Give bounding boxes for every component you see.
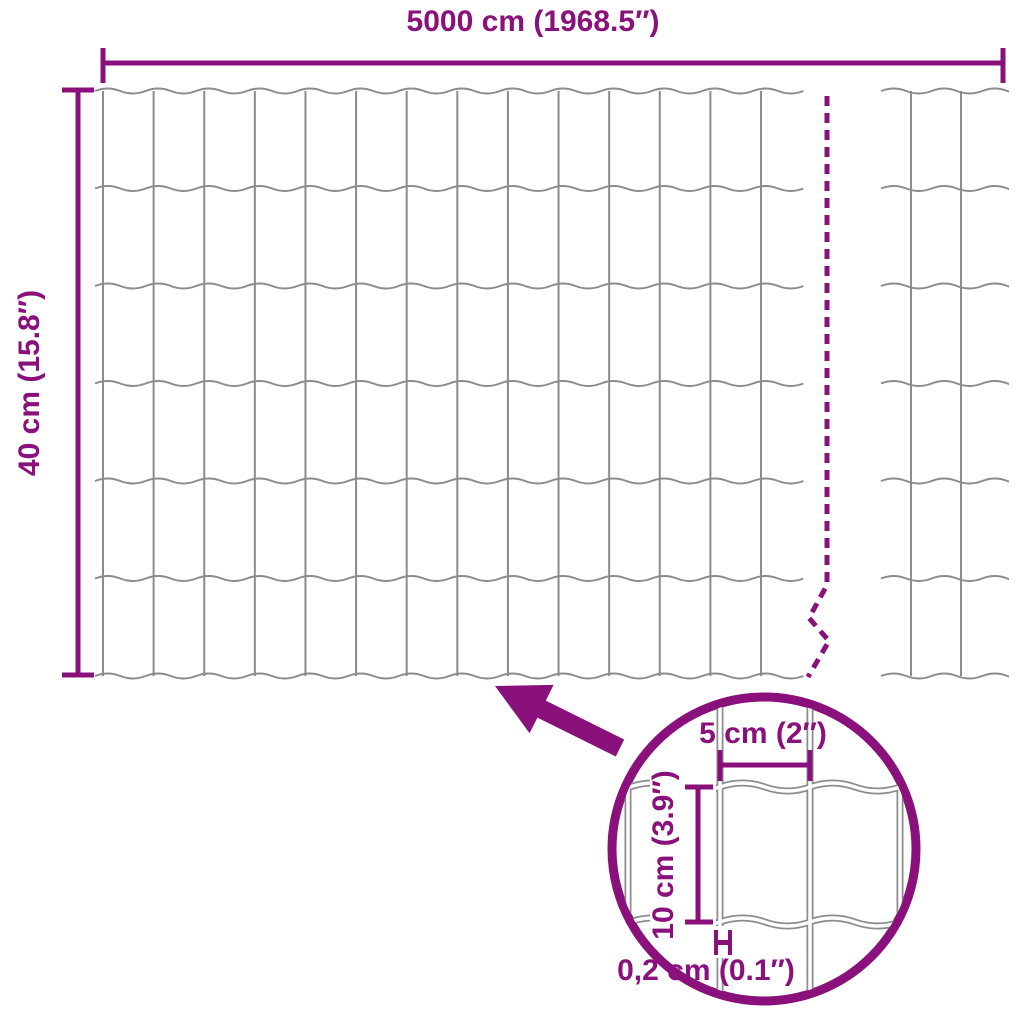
- fence-mesh-dimension-diagram: 5000 cm (1968.5″) 40 cm (15.8″) 5 cm (2″…: [0, 0, 1024, 1024]
- total-height-label: 40 cm (15.8″): [15, 290, 45, 476]
- total-width-label: 5000 cm (1968.5″): [407, 7, 660, 37]
- wire-thickness-label: 0,2 cm (0.1″): [617, 956, 795, 986]
- width-dimension-line: [103, 48, 1003, 83]
- cell-width-label: 5 cm (2″): [699, 719, 827, 749]
- magnifier-arrow-icon: [495, 685, 624, 757]
- cell-height-label: 10 cm (3.9″): [649, 770, 679, 939]
- diagram-canvas: [0, 0, 1024, 1024]
- mesh-panel-continuation: [881, 89, 1024, 679]
- break-line: [808, 96, 829, 677]
- mesh-panel: [95, 89, 803, 679]
- height-dimension-line: [62, 90, 94, 675]
